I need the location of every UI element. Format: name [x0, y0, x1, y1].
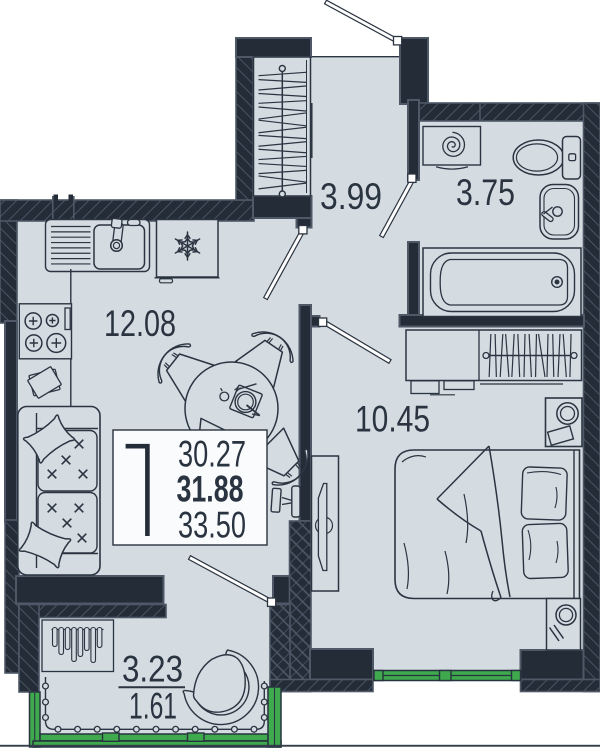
svg-text:3.99: 3.99	[320, 176, 382, 217]
svg-text:10.45: 10.45	[355, 399, 430, 440]
svg-text:33.50: 33.50	[178, 504, 246, 546]
svg-text:3.75: 3.75	[456, 172, 515, 213]
svg-text:1.61: 1.61	[129, 686, 177, 727]
svg-text:12.08: 12.08	[104, 303, 176, 344]
svg-text:3.23: 3.23	[122, 649, 183, 690]
